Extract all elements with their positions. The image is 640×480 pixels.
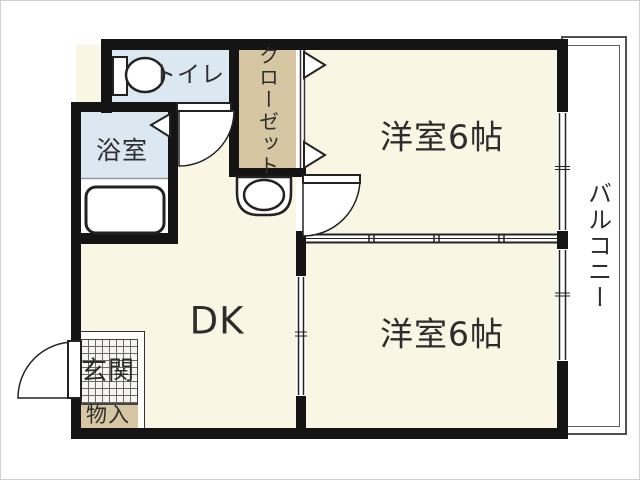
washbasin-icon [237,177,291,215]
bedroom-top-label: 洋室6帖 [380,121,504,156]
bathroom-label: 浴室 [96,138,148,164]
storage-label: 物入 [86,404,130,426]
room-partition-slider [306,235,557,243]
bathtub-icon [86,187,164,233]
balcony-label: バルコニー [584,181,609,311]
bedroom-bottom-label: 洋室6帖 [380,318,504,353]
floor-plan: トイレ 浴室 クローゼット 洋室6帖 洋室6帖 DK 玄関 物入 バルコニー [0,0,640,480]
entrance-door [18,341,81,398]
dk-label: DK [190,303,245,342]
window-top-panes [555,113,570,230]
closet-arrow-top-icon [304,52,325,78]
toilet-door [177,103,234,166]
bedroom-door [303,175,360,236]
toilet-label: トイレ [153,63,225,87]
closet-arrow-bottom-icon [304,142,325,168]
dk-bedroom-slider [295,277,307,395]
bath-door-arrow-icon [151,114,170,137]
closet-label: クローゼット [257,45,278,177]
window-bottom-panes [555,250,570,360]
entrance-label: 玄関 [81,358,135,385]
